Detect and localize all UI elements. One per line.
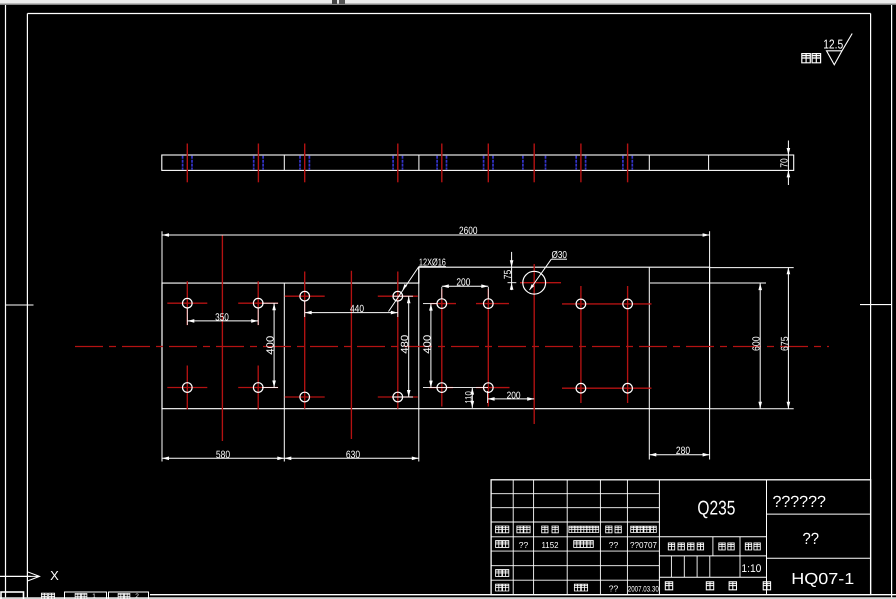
svg-text:75: 75 — [503, 270, 514, 280]
svg-text:??: ?? — [609, 584, 619, 594]
svg-text:580: 580 — [216, 449, 230, 461]
svg-text:110: 110 — [464, 391, 474, 404]
svg-text:600: 600 — [752, 336, 763, 351]
svg-text:1:10: 1:10 — [741, 563, 761, 575]
svg-text:440: 440 — [350, 304, 364, 315]
svg-text:280: 280 — [676, 445, 690, 457]
svg-text:400: 400 — [422, 335, 433, 354]
svg-text:??: ?? — [803, 530, 820, 548]
svg-text:??: ?? — [519, 540, 529, 550]
svg-text:2007.03.30: 2007.03.30 — [628, 585, 660, 594]
svg-text:480: 480 — [400, 335, 411, 354]
svg-text:2600: 2600 — [459, 225, 478, 237]
svg-text:2: 2 — [135, 593, 139, 599]
svg-text:400: 400 — [266, 336, 277, 355]
svg-text:??0707: ??0707 — [630, 540, 657, 550]
svg-text:??: ?? — [609, 540, 619, 550]
svg-text:200: 200 — [507, 390, 521, 401]
svg-text:1152: 1152 — [542, 540, 559, 550]
svg-text:1: 1 — [92, 593, 96, 599]
svg-text:Q235: Q235 — [697, 498, 735, 520]
svg-text:70: 70 — [780, 158, 791, 168]
svg-text:675: 675 — [780, 336, 791, 351]
svg-text:??????: ?????? — [772, 493, 826, 511]
svg-text:350: 350 — [215, 312, 229, 323]
svg-text:630: 630 — [346, 449, 360, 461]
svg-text:200: 200 — [456, 278, 470, 289]
svg-text:X: X — [50, 568, 59, 583]
svg-text:HQ07-1: HQ07-1 — [791, 571, 854, 588]
svg-text:12.5: 12.5 — [823, 37, 843, 52]
